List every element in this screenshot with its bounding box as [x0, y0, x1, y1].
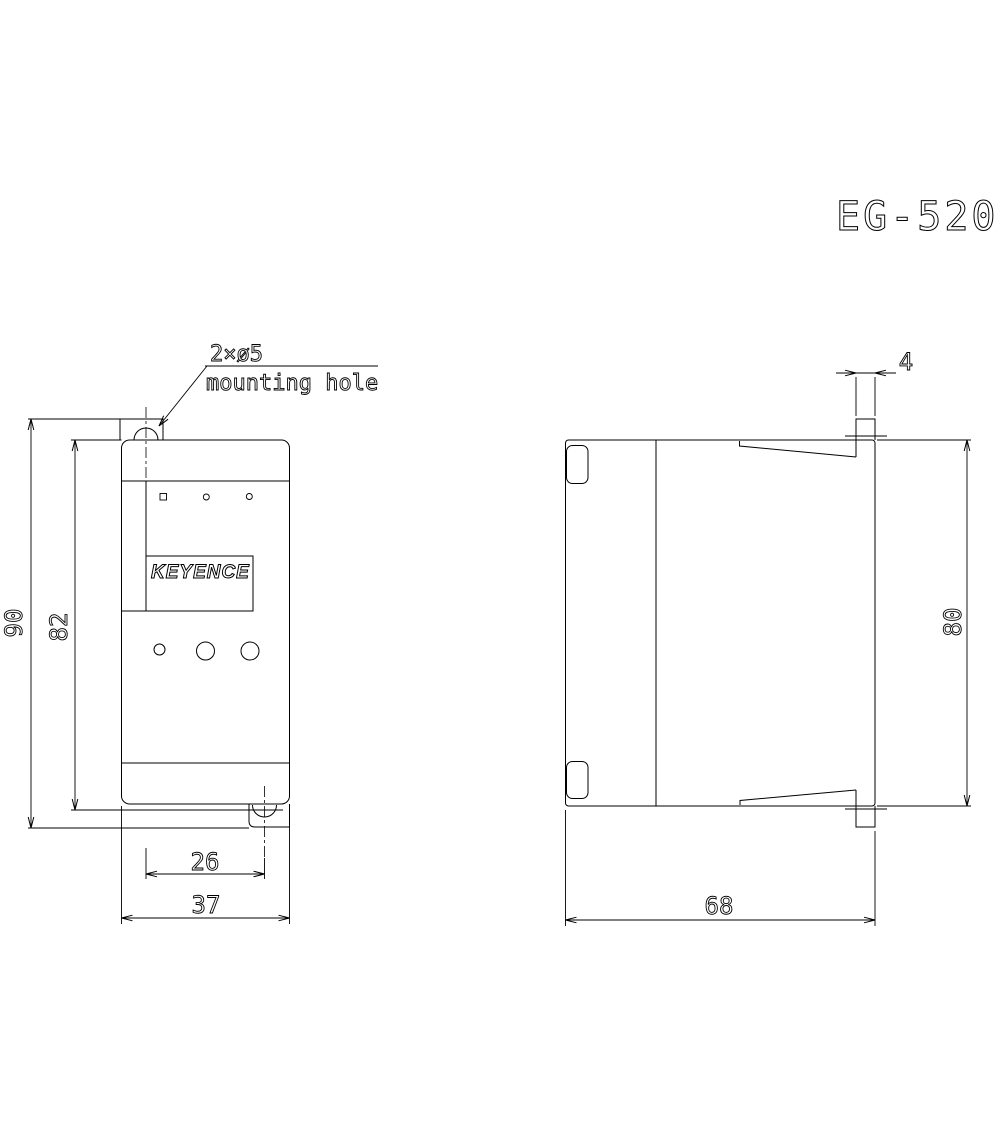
cad-drawing-page: EG-520 2×ø5 mounting hole KEYENCE — [0, 0, 1000, 1122]
flange-top-slant — [740, 441, 857, 457]
callout-size-text: 2×ø5 — [210, 342, 263, 367]
dim-text-4: 4 — [899, 348, 913, 376]
front-body-outline — [122, 440, 290, 804]
side-latch-top — [567, 446, 589, 484]
dim-body-height: 82 — [45, 440, 122, 810]
dim-depth: 68 — [566, 810, 876, 926]
front-view: KEYENCE — [71, 407, 290, 858]
indicator-square — [160, 494, 167, 501]
front-button-2 — [241, 642, 259, 660]
dim-text-26: 26 — [191, 848, 220, 876]
adjuster-hole — [154, 644, 165, 655]
callout-leader-line — [159, 366, 207, 426]
flange-bottom-slant — [740, 790, 856, 805]
dim-text-82: 82 — [45, 613, 73, 642]
dim-side-height: 80 — [877, 440, 971, 806]
flange-top-tab — [856, 419, 875, 457]
side-dimensions: 4 80 68 — [566, 348, 972, 926]
mounting-hole-callout: 2×ø5 mounting hole — [159, 342, 378, 426]
dim-text-80: 80 — [939, 608, 967, 637]
dim-text-37: 37 — [192, 891, 221, 919]
drawing-title: EG-520 — [836, 194, 999, 240]
cad-drawing-canvas: EG-520 2×ø5 mounting hole KEYENCE — [0, 0, 1000, 1122]
side-latch-bottom — [567, 762, 589, 799]
dim-tab-thickness: 4 — [836, 348, 913, 416]
front-dimensions: 90 82 26 37 — [0, 419, 290, 924]
side-body-outline — [566, 440, 876, 806]
dim-text-90: 90 — [0, 609, 28, 638]
dim-hole-pitch: 26 — [146, 848, 265, 879]
front-button-1 — [197, 642, 215, 660]
side-view — [566, 419, 888, 827]
callout-label-text: mounting hole — [206, 371, 378, 396]
dim-overall-height: 90 — [0, 419, 249, 828]
indicator-dot-1 — [203, 494, 209, 500]
keyence-logo: KEYENCE — [151, 562, 250, 583]
flange-bottom-tab — [856, 790, 875, 827]
dim-text-68: 68 — [705, 892, 734, 920]
front-bottom-mounting-tab — [249, 804, 290, 827]
indicator-dot-2 — [246, 494, 252, 500]
front-top-mounting-tab — [120, 419, 163, 440]
